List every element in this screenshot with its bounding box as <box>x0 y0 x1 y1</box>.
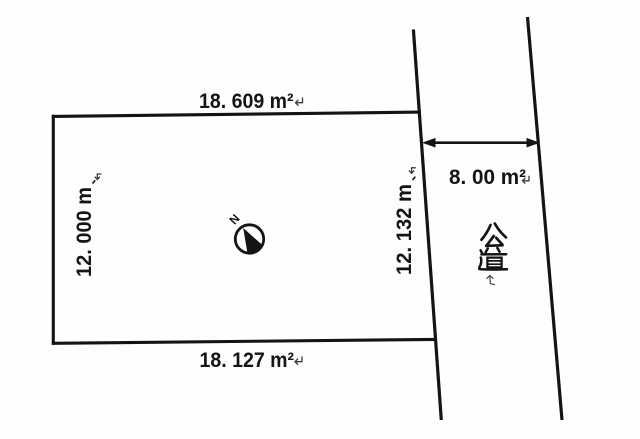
svg-text:8. 00 m²: 8. 00 m² <box>449 166 526 189</box>
svg-text:12. 132 m: 12. 132 m <box>393 184 416 275</box>
svg-text:18. 127 m²: 18. 127 m² <box>200 349 295 372</box>
svg-text:12. 000 m: 12. 000 m <box>73 187 96 277</box>
svg-text:18. 609 m²: 18. 609 m² <box>199 90 294 113</box>
